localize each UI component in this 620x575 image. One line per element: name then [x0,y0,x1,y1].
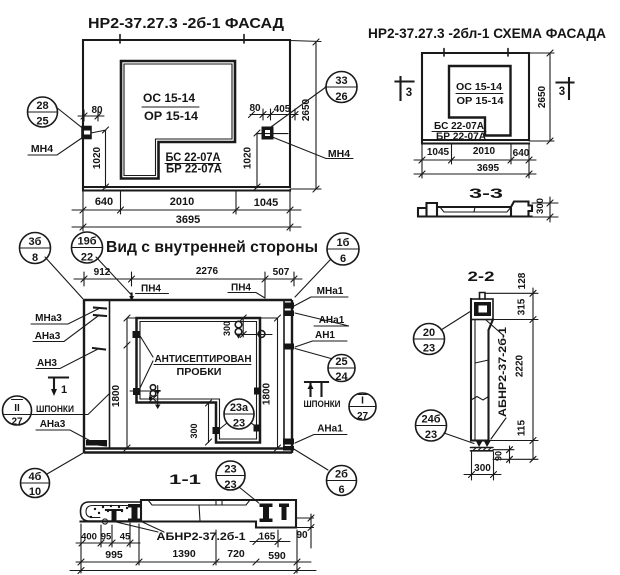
svg-text:26: 26 [335,91,347,103]
svg-text:ОС 15-14: ОС 15-14 [143,93,196,105]
svg-text:300: 300 [535,198,546,214]
svg-text:90: 90 [296,530,308,541]
svg-text:1: 1 [61,384,67,396]
svg-text:ПН4: ПН4 [141,284,161,295]
svg-text:2276: 2276 [196,266,219,277]
svg-text:2010: 2010 [170,196,194,208]
svg-text:24б: 24б [421,414,440,426]
svg-text:3695: 3695 [176,214,200,226]
svg-text:912: 912 [94,267,111,278]
svg-text:1045: 1045 [427,147,450,158]
svg-text:3: 3 [559,86,565,98]
svg-text:20: 20 [423,327,435,339]
svg-text:300: 300 [189,423,199,438]
svg-text:1800: 1800 [262,382,273,405]
svg-text:300: 300 [474,463,491,474]
svg-text:128: 128 [517,272,528,289]
svg-text:33: 33 [335,75,347,87]
svg-text:АБНР2-37-2б-1: АБНР2-37-2б-1 [497,327,509,417]
svg-text:640: 640 [95,196,113,208]
svg-text:ПРОБКИ: ПРОБКИ [177,366,222,378]
svg-text:2-2: 2-2 [468,269,495,284]
svg-text:23: 23 [233,418,245,430]
svg-text:3б: 3б [29,236,42,248]
svg-text:6: 6 [338,484,344,496]
svg-text:БР 22-07А: БР 22-07А [436,132,486,143]
svg-text:3-3: 3-3 [469,185,503,201]
svg-text:МНа3: МНа3 [35,313,62,324]
svg-text:405: 405 [274,104,291,115]
svg-text:720: 720 [227,548,245,560]
svg-text:1020: 1020 [92,146,103,169]
svg-text:80: 80 [91,105,103,116]
svg-text:АНа1: АНа1 [317,424,343,435]
svg-text:I: I [361,396,364,407]
svg-text:27: 27 [357,411,369,422]
svg-text:300: 300 [222,321,232,336]
svg-text:1800: 1800 [111,384,122,407]
svg-text:590: 590 [268,550,286,562]
svg-text:1020: 1020 [243,146,254,169]
svg-text:Вид с внутренней стороны: Вид с внутренней стороны [106,239,318,256]
svg-text:23: 23 [224,464,236,476]
svg-text:165: 165 [259,532,276,543]
svg-text:ШПОНКИ: ШПОНКИ [304,399,341,410]
svg-text:90: 90 [494,451,504,461]
svg-text:АН3: АН3 [37,358,57,369]
svg-text:8: 8 [32,252,38,264]
svg-text:АНа3: АНа3 [40,419,66,430]
svg-text:2220: 2220 [515,354,526,377]
svg-text:10: 10 [29,486,41,498]
svg-text:НР2-37.27.3 -2б-1 ФАСАД: НР2-37.27.3 -2б-1 ФАСАД [88,15,284,32]
svg-text:115: 115 [517,419,528,436]
svg-text:2650: 2650 [537,85,548,108]
svg-text:2010: 2010 [473,146,496,157]
svg-text:ШПОНКИ: ШПОНКИ [36,404,74,415]
svg-text:2б: 2б [335,469,348,481]
svg-text:315: 315 [517,298,528,315]
svg-text:АНа3: АНа3 [35,331,61,342]
svg-text:ОС 15-14: ОС 15-14 [456,81,502,93]
svg-text:507: 507 [273,267,290,278]
svg-text:25: 25 [36,116,48,128]
svg-text:II: II [14,403,20,414]
svg-text:3695: 3695 [477,163,500,174]
svg-text:6: 6 [340,253,346,265]
svg-text:45: 45 [120,532,131,543]
svg-text:25: 25 [335,356,347,368]
svg-text:1045: 1045 [254,197,278,209]
svg-text:МНа1: МНа1 [317,286,344,297]
svg-text:БР 22-07А: БР 22-07А [166,164,222,176]
svg-text:23: 23 [425,429,437,441]
svg-text:22: 22 [81,252,93,264]
svg-text:640: 640 [513,148,530,159]
svg-text:3: 3 [406,87,412,99]
svg-text:24: 24 [335,371,348,383]
svg-text:ОР 15-14: ОР 15-14 [144,111,199,123]
svg-text:4б: 4б [29,471,42,483]
svg-text:1б: 1б [337,237,350,249]
svg-text:23: 23 [224,479,236,491]
svg-text:БС 22-07А: БС 22-07А [434,121,484,132]
svg-text:27: 27 [11,417,23,428]
svg-text:1-1: 1-1 [169,471,201,487]
svg-text:23а: 23а [230,402,249,414]
svg-text:1390: 1390 [172,548,196,560]
svg-text:ОР 15-14: ОР 15-14 [457,95,504,107]
svg-text:80: 80 [249,103,261,114]
svg-text:995: 995 [105,549,123,561]
svg-text:28: 28 [36,100,48,112]
svg-text:19б: 19б [77,236,96,248]
svg-text:АН1: АН1 [315,330,335,341]
svg-text:МН4: МН4 [31,143,53,155]
svg-text:АНТИСЕПТИРОВАН: АНТИСЕПТИРОВАН [155,353,252,365]
svg-text:НР2-37.27.3 -2бл-1 СХЕМА ФАСАД: НР2-37.27.3 -2бл-1 СХЕМА ФАСАДА [368,25,606,41]
svg-text:23: 23 [423,343,435,355]
svg-text:БС 22-07А: БС 22-07А [166,152,221,164]
svg-text:ПН4: ПН4 [231,283,251,294]
svg-text:АБНР2-37.2б-1: АБНР2-37.2б-1 [157,531,246,543]
